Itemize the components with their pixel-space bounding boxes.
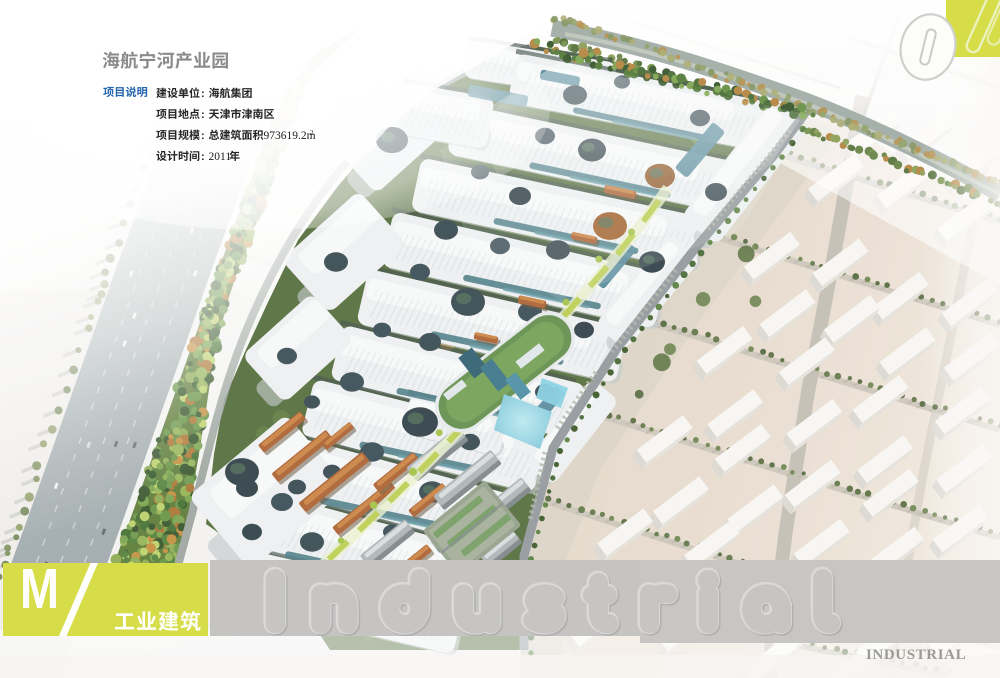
svg-text:INDUSTRIAL: INDUSTRIAL [866,647,966,663]
svg-text::: : [201,130,205,142]
svg-text:2011: 2011 [209,151,232,163]
svg-text:M: M [20,557,59,621]
svg-text:973619.2m: 973619.2m [264,130,316,142]
svg-text::: : [201,151,205,163]
svg-text::: : [201,88,205,100]
svg-text:2: 2 [310,129,314,137]
svg-text::: : [201,109,205,121]
